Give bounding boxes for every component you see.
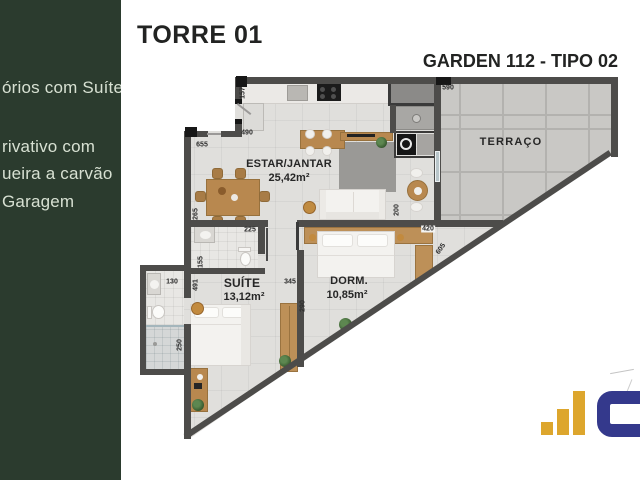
bar-stool	[322, 129, 332, 139]
wall	[140, 369, 185, 375]
sofa	[319, 189, 386, 220]
dim-label: 130	[166, 279, 178, 286]
plant-icon	[192, 399, 204, 411]
wall	[184, 268, 265, 274]
pillar	[185, 127, 197, 137]
dim-label: 655	[196, 142, 208, 149]
burner-icon	[320, 94, 325, 99]
door-leaf	[296, 222, 299, 250]
wall	[297, 220, 503, 227]
dim-label: 157	[240, 87, 247, 99]
dim-label: 225	[244, 227, 256, 234]
tv	[347, 134, 375, 137]
living-rug	[339, 142, 396, 192]
wall	[184, 324, 191, 439]
cooktop	[317, 84, 341, 101]
pouf	[303, 201, 316, 214]
logo-letter-c	[597, 391, 640, 437]
dim-label: 490	[241, 130, 253, 137]
bedside-lamp	[397, 234, 404, 241]
shower-drain	[153, 342, 157, 346]
logo-bar-icon	[541, 422, 553, 435]
duvet-fold	[318, 255, 394, 256]
washing-machine	[397, 134, 416, 155]
room-area-dorm: 10,85m²	[327, 289, 368, 301]
dorm-bed	[317, 231, 395, 278]
wall	[390, 105, 396, 133]
bar-stool	[305, 146, 315, 156]
lavabo-vanity	[194, 226, 215, 243]
dim-label: 200	[394, 204, 401, 216]
sofa-arm	[320, 190, 326, 219]
wall	[221, 131, 242, 137]
wall	[611, 77, 618, 157]
decor	[197, 374, 203, 380]
glass-door	[435, 151, 440, 182]
service-table	[407, 180, 428, 201]
door-leaf	[266, 228, 268, 261]
laundry-cabinet	[417, 134, 435, 155]
pillow	[357, 234, 388, 247]
sofa-back	[320, 212, 385, 219]
dining-chair	[195, 191, 206, 202]
room-label-suite: SUÍTE	[224, 276, 260, 290]
dim-label: 250	[177, 339, 184, 351]
service-chair	[410, 168, 423, 178]
dining-chair	[212, 168, 223, 179]
laundry-sink	[412, 114, 421, 123]
room-label-terrace: TERRAÇO	[480, 136, 543, 148]
wall	[140, 265, 146, 375]
toilet	[152, 305, 165, 319]
dim-label: 590	[442, 85, 454, 92]
duvet-edge	[241, 305, 250, 365]
wall	[140, 265, 185, 271]
bar-stool	[322, 146, 332, 156]
service-chair	[410, 202, 423, 212]
wall	[235, 77, 618, 84]
basin	[200, 231, 211, 239]
burner-icon	[320, 87, 325, 92]
basin	[150, 280, 159, 289]
dim-label: 290	[300, 300, 307, 312]
suite-bath-vanity	[147, 273, 161, 295]
toilet	[240, 252, 251, 266]
table-decor	[218, 187, 226, 195]
door-leaf	[207, 133, 221, 135]
logo-bar-icon	[557, 409, 569, 435]
tv	[194, 383, 202, 389]
dim-label: 420	[421, 226, 435, 233]
dim-label: 491	[193, 279, 200, 291]
logo-bar-icon	[573, 391, 585, 435]
dim-label: 345	[284, 279, 296, 286]
room-label-dorm: DORM.	[330, 275, 368, 287]
plate	[414, 187, 422, 195]
flyer-page: { "header": { "title": "TORRE 01", "unit…	[0, 0, 640, 480]
wall	[258, 220, 265, 254]
kitchen-sink	[287, 85, 308, 101]
room-area-living: 25,42m²	[269, 172, 310, 184]
pillow	[322, 234, 353, 247]
room-label-living: ESTAR/JANTAR	[246, 158, 332, 170]
sofa-arm	[379, 190, 385, 219]
sofa-cushion-line	[353, 192, 354, 212]
bedside-lamp	[309, 234, 316, 241]
kitchen-counter	[242, 84, 390, 104]
dining-chair	[235, 168, 246, 179]
dining-chair	[259, 191, 270, 202]
table-decor	[231, 194, 238, 201]
dining-table	[206, 179, 260, 216]
laundry-counter	[394, 106, 435, 130]
washer-door-icon	[400, 138, 412, 150]
logo-mark-line	[610, 369, 634, 374]
dim-label: 155	[198, 256, 205, 268]
hanging-chair	[191, 302, 204, 315]
logo-mark-line	[627, 379, 633, 391]
plant-icon	[376, 137, 387, 148]
pillar	[236, 76, 247, 87]
burner-icon	[331, 87, 336, 92]
fridge	[243, 103, 264, 131]
dim-label: 265	[193, 208, 200, 220]
burner-icon	[331, 94, 336, 99]
room-area-suite: 13,12m²	[224, 291, 265, 303]
bar-stool	[305, 129, 315, 139]
